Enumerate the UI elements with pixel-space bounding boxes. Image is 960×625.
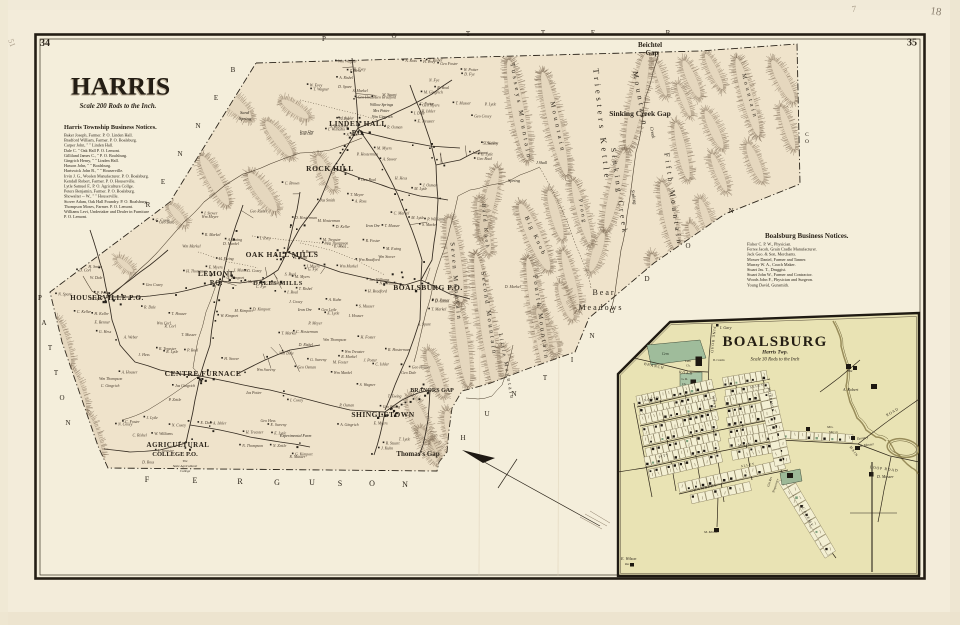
svg-text:Luth: Luth	[684, 359, 691, 363]
svg-text:D. Fye: D. Fye	[463, 73, 475, 77]
svg-text:T. Meyer: T. Meyer	[350, 193, 364, 197]
svg-text:T. Smith: T. Smith	[294, 256, 307, 260]
svg-text:I. Houser: I. Houser	[348, 314, 364, 318]
svg-text:Iron Ore: Iron Ore	[297, 307, 312, 312]
svg-text:S: S	[338, 479, 342, 488]
svg-text:P. Boal: P. Boal	[186, 349, 198, 353]
svg-text:HARRIS: HARRIS	[71, 72, 170, 101]
svg-text:D. Potter: D. Potter	[434, 299, 450, 303]
svg-text:Wm Treaster: Wm Treaster	[345, 350, 365, 354]
svg-text:R. Treaster: R. Treaster	[158, 347, 177, 351]
svg-text:Geo Boal: Geo Boal	[361, 178, 376, 182]
svg-text:J. Kuhn: J. Kuhn	[381, 447, 393, 451]
svg-text:E. Sweeny: E. Sweeny	[270, 423, 287, 427]
svg-text:College: College	[180, 469, 191, 473]
svg-text:U: U	[309, 478, 315, 487]
svg-text:P. Williams: P. Williams	[426, 218, 445, 222]
svg-text:M. Ewing: M. Ewing	[385, 247, 401, 251]
svg-text:A. Stover: A. Stover	[382, 157, 398, 161]
svg-text:Harris Twp.: Harris Twp.	[761, 350, 788, 356]
svg-text:P. Lytle: P. Lytle	[484, 103, 497, 107]
svg-text:T. Houser: T. Houser	[172, 312, 188, 316]
svg-text:T. Ewing: T. Ewing	[388, 395, 402, 399]
svg-text:State Agricultural: State Agricultural	[173, 464, 197, 468]
svg-text:N: N	[589, 332, 594, 340]
svg-text:M. Treaster: M. Treaster	[322, 238, 341, 242]
svg-text:D. Spare: D. Spare	[337, 85, 352, 89]
svg-text:Geo Boal: Geo Boal	[477, 157, 492, 161]
svg-text:N. Thompson: N. Thompson	[241, 444, 263, 448]
svg-text:H: H	[460, 434, 465, 442]
svg-text:D. Markel: D. Markel	[222, 242, 239, 246]
svg-text:C. Rishel: C. Rishel	[133, 434, 147, 438]
svg-text:C. Brown: C. Brown	[285, 181, 300, 185]
svg-text:M. Lytle: M. Lytle	[413, 187, 427, 191]
svg-text:N. Treaster: N. Treaster	[379, 282, 398, 286]
svg-text:N: N	[728, 207, 733, 215]
svg-text:Jas Smith: Jas Smith	[320, 199, 335, 203]
svg-text:E. Myers: E. Myers	[208, 266, 224, 270]
svg-text:G. Coxey: G. Coxey	[247, 269, 262, 273]
svg-text:N: N	[402, 480, 408, 489]
svg-text:Wm Thompson: Wm Thompson	[323, 338, 346, 342]
svg-text:A. Ishler: A. Ishler	[212, 421, 227, 425]
svg-text:R. Stuart: R. Stuart	[385, 442, 401, 446]
svg-text:Geo Dale: Geo Dale	[401, 371, 416, 375]
svg-text:Mrs Potter: Mrs Potter	[372, 109, 390, 113]
svg-text:D. Kimport: D. Kimport	[252, 308, 272, 312]
svg-text:B e a r: B e a r	[592, 288, 613, 297]
svg-text:H. Stover: H. Stover	[223, 357, 239, 361]
svg-text:A: A	[41, 319, 46, 327]
svg-text:J. Osman: J. Osman	[423, 183, 438, 187]
svg-text:E: E	[161, 178, 165, 186]
svg-text:I. Treaster: I. Treaster	[157, 449, 175, 453]
svg-text:D. Keller: D. Keller	[335, 225, 351, 229]
svg-text:P. Osman: P. Osman	[338, 403, 354, 407]
svg-text:T. Markel: T. Markel	[431, 308, 446, 312]
svg-text:Boalsburg Business Notices.: Boalsburg Business Notices.	[765, 232, 849, 240]
svg-text:J. Lytle: J. Lytle	[147, 416, 159, 420]
svg-text:Ch.: Ch.	[686, 364, 691, 368]
svg-text:S. Wagner: S. Wagner	[360, 383, 376, 387]
svg-text:G. Kimport: G. Kimport	[227, 276, 246, 280]
svg-text:W. Evey: W. Evey	[310, 83, 323, 87]
svg-text:Geo Coxey: Geo Coxey	[146, 283, 163, 287]
svg-text:M. Lytle: M. Lytle	[410, 216, 424, 220]
svg-text:R. Boal: R. Boal	[436, 86, 449, 90]
svg-text:E. Wilson: E. Wilson	[620, 556, 636, 561]
svg-text:E: E	[591, 29, 595, 37]
svg-text:D. Ross: D. Ross	[141, 460, 155, 464]
svg-text:O: O	[685, 242, 690, 250]
svg-text:Wm Wagner: Wm Wagner	[338, 60, 357, 64]
svg-text:N. Zettle: N. Zettle	[272, 444, 287, 448]
svg-text:D. Markel: D. Markel	[504, 285, 521, 289]
svg-text:R. Markel: R. Markel	[340, 355, 357, 359]
svg-text:T: T	[48, 344, 53, 352]
svg-text:Sand: Sand	[240, 110, 250, 115]
svg-text:E. Lytle: E. Lytle	[326, 312, 339, 316]
svg-text:Geo Foster: Geo Foster	[440, 62, 458, 66]
svg-text:F: F	[145, 475, 150, 484]
svg-text:A. Weber: A. Weber	[123, 335, 139, 339]
svg-text:O: O	[805, 139, 809, 145]
svg-text:P. Hosterman: P. Hosterman	[356, 153, 378, 157]
svg-text:A. Spare: A. Spare	[417, 323, 432, 327]
svg-text:C. Potter: C. Potter	[420, 102, 435, 106]
svg-text:J Shall: J Shall	[536, 160, 548, 165]
svg-text:T. Musser: T. Musser	[456, 102, 472, 106]
svg-text:BOALSBURG P.O.: BOALSBURG P.O.	[393, 283, 462, 292]
svg-text:M. Myers: M. Myers	[376, 147, 392, 151]
svg-text:Willow Springs: Willow Springs	[370, 103, 394, 107]
svg-text:Geo Houser: Geo Houser	[412, 366, 431, 370]
svg-text:B. Combs: B. Combs	[713, 358, 726, 362]
svg-text:C. Fye: C. Fye	[256, 285, 267, 289]
svg-text:R. Osman: R. Osman	[386, 125, 402, 129]
svg-text:B: B	[231, 66, 236, 74]
svg-text:D: D	[644, 275, 649, 283]
svg-text:O: O	[369, 479, 375, 488]
svg-text:O: O	[59, 394, 64, 402]
svg-text:Scale 30 Rods to the Inch: Scale 30 Rods to the Inch	[751, 358, 800, 363]
svg-text:E. Boal: E. Boal	[333, 245, 346, 249]
svg-text:R. Corl: R. Corl	[164, 325, 176, 329]
svg-text:Spring: Spring	[508, 178, 521, 183]
svg-text:P. O. Lemont.: P. O. Lemont.	[64, 214, 87, 219]
svg-text:J. Potter: J. Potter	[364, 359, 378, 363]
svg-text:I. Evey: I. Evey	[259, 237, 271, 241]
svg-text:I. Musser: I. Musser	[233, 268, 249, 272]
svg-text:C. Markel: C. Markel	[394, 211, 410, 215]
svg-text:H. Hess: H. Hess	[394, 176, 408, 180]
svg-text:AGRICULTURAL: AGRICULTURAL	[147, 441, 210, 449]
svg-text:G. Coxey: G. Coxey	[156, 219, 171, 223]
svg-text:N. Spare: N. Spare	[57, 293, 72, 297]
svg-text:T. Rishel: T. Rishel	[299, 287, 313, 291]
svg-text:Wm Bradford: Wm Bradford	[359, 258, 380, 262]
svg-text:P: P	[322, 35, 326, 43]
svg-text:S. Bradford: S. Bradford	[330, 125, 348, 129]
svg-text:The: The	[182, 459, 188, 463]
svg-text:A. Ross: A. Ross	[354, 199, 367, 203]
svg-text:D. Rishel: D. Rishel	[298, 343, 313, 347]
svg-text:U: U	[484, 410, 489, 418]
svg-text:Wm Dale: Wm Dale	[279, 352, 294, 356]
svg-text:G. R.: G. R.	[682, 377, 689, 381]
svg-text:A. Gingrich: A. Gingrich	[339, 423, 358, 427]
svg-text:Bbt: Bbt	[848, 369, 853, 373]
svg-text:A. Rishel: A. Rishel	[338, 76, 353, 80]
svg-text:R: R	[666, 29, 671, 37]
svg-text:N: N	[195, 122, 200, 130]
svg-text:W. Dale: W. Dale	[90, 276, 103, 280]
svg-text:Thomas's Gap: Thomas's Gap	[396, 450, 439, 458]
svg-text:R. Dale: R. Dale	[143, 305, 156, 309]
svg-text:E. Benner: E. Benner	[94, 321, 111, 325]
svg-text:R: R	[237, 477, 243, 486]
svg-text:Jas Potter: Jas Potter	[246, 391, 262, 395]
svg-text:G. Fye: G. Fye	[308, 268, 319, 272]
svg-text:S. Musser: S. Musser	[359, 305, 375, 309]
svg-text:H. Foster: H. Foster	[360, 335, 376, 339]
svg-text:E: E	[214, 94, 218, 102]
svg-text:S. Markel: S. Markel	[422, 223, 437, 227]
svg-text:H. Thompson: H. Thompson	[185, 270, 207, 274]
svg-text:N. Fye: N. Fye	[428, 78, 440, 82]
svg-text:J. Hess: J. Hess	[138, 353, 150, 357]
svg-text:A. Ross: A. Ross	[404, 59, 417, 63]
svg-text:W. Stuart: W. Stuart	[382, 93, 397, 97]
svg-text:D. Mosser: D. Mosser	[876, 474, 894, 479]
svg-text:C. Keller: C. Keller	[77, 310, 92, 314]
svg-text:Res: Res	[624, 562, 630, 566]
svg-text:T. Markel: T. Markel	[281, 332, 296, 336]
svg-text:Gap: Gap	[646, 49, 659, 57]
svg-text:W. Lytle: W. Lytle	[90, 297, 103, 301]
svg-text:C. Markel: C. Markel	[265, 282, 281, 286]
svg-text:35: 35	[907, 38, 917, 49]
svg-text:HOUSERVILLE P.O.: HOUSERVILLE P.O.	[70, 294, 143, 302]
svg-text:May m: May m	[828, 430, 838, 434]
svg-text:I. Dale: I. Dale	[413, 111, 425, 115]
svg-text:W. Kimport: W. Kimport	[220, 314, 239, 318]
svg-text:Beichtel: Beichtel	[638, 41, 662, 49]
svg-text:Wm Sweeny: Wm Sweeny	[257, 368, 276, 372]
svg-text:Wm Markel: Wm Markel	[340, 265, 358, 269]
svg-text:T. Musser: T. Musser	[181, 333, 197, 337]
svg-text:P. Meyer: P. Meyer	[307, 321, 322, 325]
svg-text:C. Hosterman: C. Hosterman	[296, 330, 318, 334]
svg-text:D. Hosterman: D. Hosterman	[294, 216, 317, 220]
svg-text:W. Williams: W. Williams	[154, 432, 173, 436]
svg-text:Wm Markel: Wm Markel	[334, 371, 352, 375]
svg-text:T. Musser: T. Musser	[385, 224, 401, 228]
svg-text:R. Benner: R. Benner	[301, 250, 318, 254]
svg-text:G. Hess: G. Hess	[99, 330, 112, 334]
svg-text:T. Wagner: T. Wagner	[313, 88, 329, 92]
svg-text:Geo Houser: Geo Houser	[358, 96, 377, 100]
svg-text:M. Hosterman: M. Hosterman	[317, 219, 341, 223]
svg-text:P. Zettle: P. Zettle	[168, 398, 182, 402]
svg-text:A. Houser: A. Houser	[121, 370, 138, 374]
svg-text:E. Myers: E. Myers	[373, 421, 389, 425]
svg-text:R. Foster: R. Foster	[365, 239, 381, 243]
svg-text:G. Kimport: G. Kimport	[295, 453, 314, 457]
svg-text:I. Boal: I. Boal	[286, 291, 298, 295]
svg-text:J. Coxey: J. Coxey	[289, 300, 303, 304]
svg-text:S. Boal: S. Boal	[285, 272, 296, 276]
svg-text:T: T	[541, 29, 546, 37]
svg-text:N: N	[65, 419, 70, 427]
svg-text:T: T	[54, 369, 59, 377]
svg-text:Jas Stuart: Jas Stuart	[472, 151, 489, 155]
svg-text:Cem: Cem	[662, 352, 669, 356]
svg-text:S. Markel: S. Markel	[353, 89, 368, 93]
svg-text:H. Ewing: H. Ewing	[218, 257, 234, 261]
svg-text:Spring: Spring	[239, 116, 252, 121]
svg-text:N: N	[177, 150, 182, 158]
svg-text:I. Stover: I. Stover	[203, 212, 218, 216]
svg-text:T. Keller: T. Keller	[484, 141, 498, 145]
svg-text:BRANORS GAP: BRANORS GAP	[410, 388, 454, 394]
svg-text:H. Keller: H. Keller	[93, 312, 109, 316]
svg-text:T. Lytle: T. Lytle	[399, 438, 411, 442]
svg-text:Geo Coxey: Geo Coxey	[474, 114, 491, 118]
svg-text:E. Lytle: E. Lytle	[273, 432, 286, 436]
svg-text:Scale 200 Rods to the Inch.: Scale 200 Rods to the Inch.	[80, 103, 157, 110]
svg-text:T: T	[543, 374, 548, 382]
svg-text:G: G	[274, 478, 280, 487]
svg-text:N. Coxey: N. Coxey	[171, 423, 187, 427]
svg-text:Jas Gingrich: Jas Gingrich	[175, 384, 195, 388]
svg-text:I. Gary: I. Gary	[719, 325, 732, 330]
svg-text:Iron Ore: Iron Ore	[365, 223, 380, 228]
svg-text:M. Kimport: M. Kimport	[234, 309, 254, 313]
svg-text:H. Treaster: H. Treaster	[245, 430, 264, 434]
svg-text:Wm Meyer: Wm Meyer	[202, 215, 219, 219]
svg-text:R. Markel: R. Markel	[204, 233, 221, 237]
svg-text:C. Ishler: C. Ishler	[375, 363, 389, 367]
svg-text:E. Dale: E. Dale	[200, 421, 213, 425]
svg-text:E. Treaster: E. Treaster	[417, 120, 436, 124]
svg-text:M. Mosser: M. Mosser	[703, 530, 720, 534]
svg-text:M. Foster: M. Foster	[332, 360, 349, 364]
svg-text:H. Bradford: H. Bradford	[367, 290, 387, 294]
svg-text:Iron Ore: Iron Ore	[299, 132, 313, 136]
svg-text:C. Gingrich: C. Gingrich	[101, 384, 120, 388]
svg-text:Harris Township Business Notic: Harris Township Business Notices.	[64, 124, 157, 131]
svg-text:P: P	[38, 294, 42, 302]
svg-text:T. Rishel: T. Rishel	[429, 59, 443, 63]
svg-text:34: 34	[40, 38, 50, 49]
svg-text:Wm Thompson: Wm Thompson	[99, 377, 122, 381]
svg-text:Geo Rishel: Geo Rishel	[250, 209, 267, 213]
svg-text:G. Sweeny: G. Sweeny	[310, 358, 327, 362]
svg-text:Wm Gingrich: Wm Gingrich	[372, 115, 393, 119]
svg-text:Wm Markel: Wm Markel	[182, 245, 200, 249]
svg-text:M e a d o w s: M e a d o w s	[578, 303, 621, 312]
svg-text:H. Evey: H. Evey	[352, 68, 366, 72]
svg-text:Sinking Creek Gap: Sinking Creek Gap	[609, 109, 671, 118]
svg-text:18: 18	[930, 5, 943, 18]
svg-text:T: T	[466, 30, 471, 38]
svg-text:I. Coxey: I. Coxey	[289, 399, 303, 403]
svg-text:R. Hosterman: R. Hosterman	[387, 348, 410, 352]
svg-text:S. Dale: S. Dale	[347, 133, 359, 137]
svg-text:BOALSBURG: BOALSBURG	[723, 334, 828, 350]
svg-text:CENTRE FURNACE: CENTRE FURNACE	[165, 369, 242, 378]
svg-text:ROCK HILL: ROCK HILL	[306, 164, 354, 173]
svg-text:O: O	[391, 32, 396, 40]
svg-text:Geo Hess: Geo Hess	[261, 419, 277, 423]
svg-text:A. Robert: A. Robert	[842, 387, 859, 392]
svg-text:E: E	[193, 476, 198, 485]
svg-text:A. Kuhn: A. Kuhn	[328, 298, 342, 302]
svg-text:C. Foster: C. Foster	[125, 420, 140, 424]
svg-text:M. Myers: M. Myers	[294, 275, 310, 279]
svg-text:Wm Stover: Wm Stover	[378, 255, 395, 259]
svg-text:Mrs.: Mrs.	[826, 425, 834, 429]
svg-text:M. Gingrich: M. Gingrich	[423, 91, 443, 95]
svg-text:SHINGLETOWN: SHINGLETOWN	[351, 410, 414, 419]
svg-text:N. Fye: N. Fye	[338, 117, 350, 121]
svg-text:C: C	[805, 132, 809, 138]
svg-text:Geo Osman: Geo Osman	[298, 366, 317, 370]
